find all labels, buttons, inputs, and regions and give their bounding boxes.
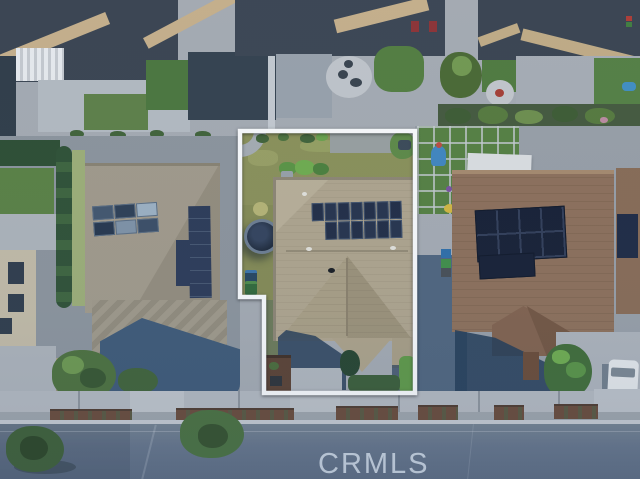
street-seam (0, 431, 640, 432)
parkway-planter-5 (494, 405, 524, 420)
parkway-planter-4 (418, 405, 458, 420)
streetscape (0, 0, 640, 479)
crmls-watermark: CRMLS (318, 448, 430, 479)
street-tree-2-core (198, 424, 228, 448)
aerial-photo: CRMLS (0, 0, 640, 479)
parkway-planter-3 (336, 406, 398, 421)
parkway-planter-6 (554, 404, 598, 419)
street-tree-core (20, 436, 48, 460)
